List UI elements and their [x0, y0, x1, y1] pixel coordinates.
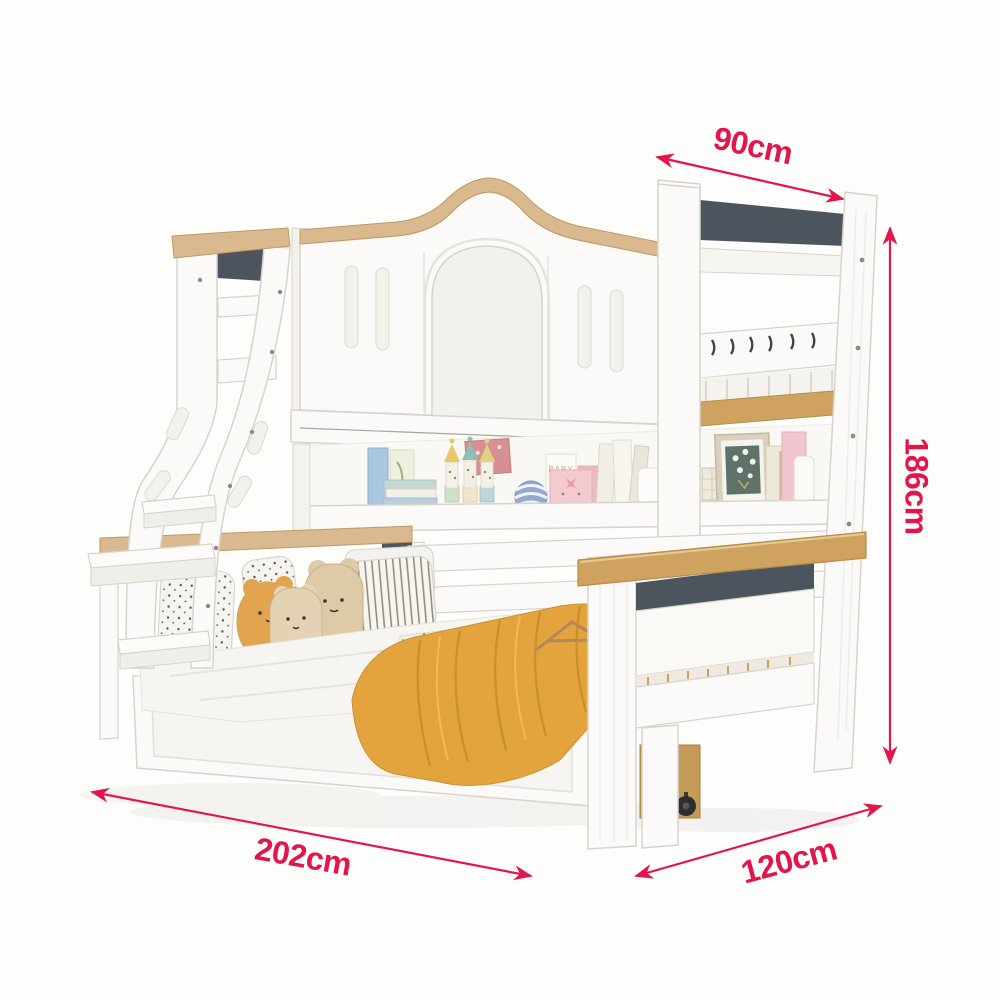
bunk-bed-illustration: BABY: [0, 0, 1000, 1000]
shelf-left-cap: [293, 444, 310, 533]
upper-far-post-front: [658, 184, 700, 560]
bookend-right: [794, 456, 814, 504]
product-dimension-image: BABY: [0, 0, 1000, 1000]
footboard-near-post: [588, 554, 636, 849]
upper-arched-panel: [291, 178, 700, 458]
footboard-leg: [642, 725, 678, 848]
dimension-label-height: 186cm: [898, 437, 935, 534]
panel-arch-window: [432, 246, 542, 421]
book-blue: [368, 448, 388, 506]
book-stack: [383, 480, 437, 506]
upper-end-rail: [700, 248, 845, 276]
floral-frame: [715, 433, 772, 509]
upper-end-dark-rail: [700, 200, 845, 246]
castle-toys: [444, 437, 495, 503]
